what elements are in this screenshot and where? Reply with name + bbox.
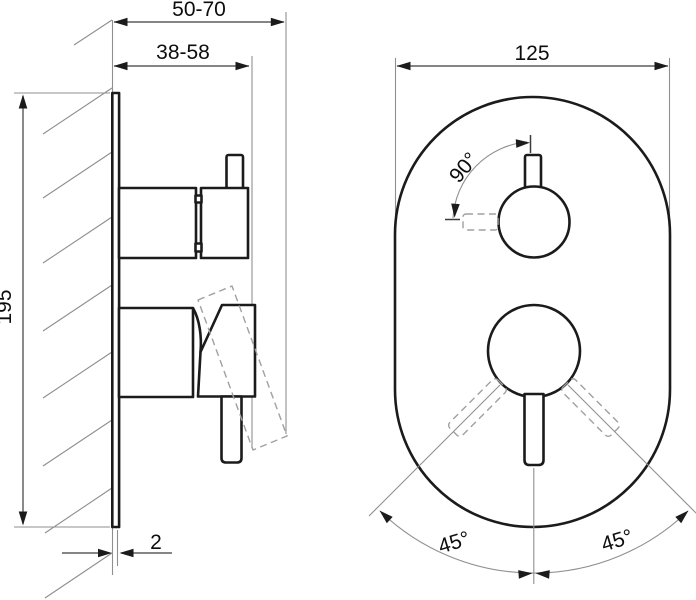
- lever-stem-side: [222, 397, 242, 463]
- technical-drawing: 195 50-70 38-58: [0, 0, 696, 600]
- dim-height-label: 195: [0, 289, 16, 324]
- thermostat-stem-side: [227, 155, 244, 189]
- dim-inner-depth-label: 38-58: [156, 41, 210, 64]
- lever-handle-side: [198, 305, 255, 397]
- drawing-page: 195 50-70 38-58: [0, 0, 696, 600]
- wall-hatch: [43, 20, 112, 598]
- dim-plate-width-label: 125: [514, 42, 549, 65]
- front-view: 125 90°: [369, 42, 696, 584]
- angle-45-left-label: 45°: [436, 527, 473, 558]
- thermostat-body-side: [119, 188, 196, 258]
- side-view: 195 50-70 38-58: [0, 0, 287, 598]
- lever-body-side: [119, 308, 193, 397]
- thermostat-cap-side: [201, 188, 248, 258]
- dim-height: 195: [0, 93, 110, 527]
- thermostat-notch-top: [196, 196, 202, 203]
- lever-control-side: [119, 286, 287, 463]
- thermostat-knob: [499, 187, 570, 258]
- lever-neck-curve: [194, 309, 201, 352]
- thermostat-control-side: [119, 155, 248, 258]
- lever-handle-down: [525, 394, 544, 465]
- dim-outer-depth-label: 50-70: [172, 0, 226, 21]
- dim-plate-thickness-label: 2: [150, 531, 162, 554]
- thermostat-notch-bottom: [196, 244, 202, 252]
